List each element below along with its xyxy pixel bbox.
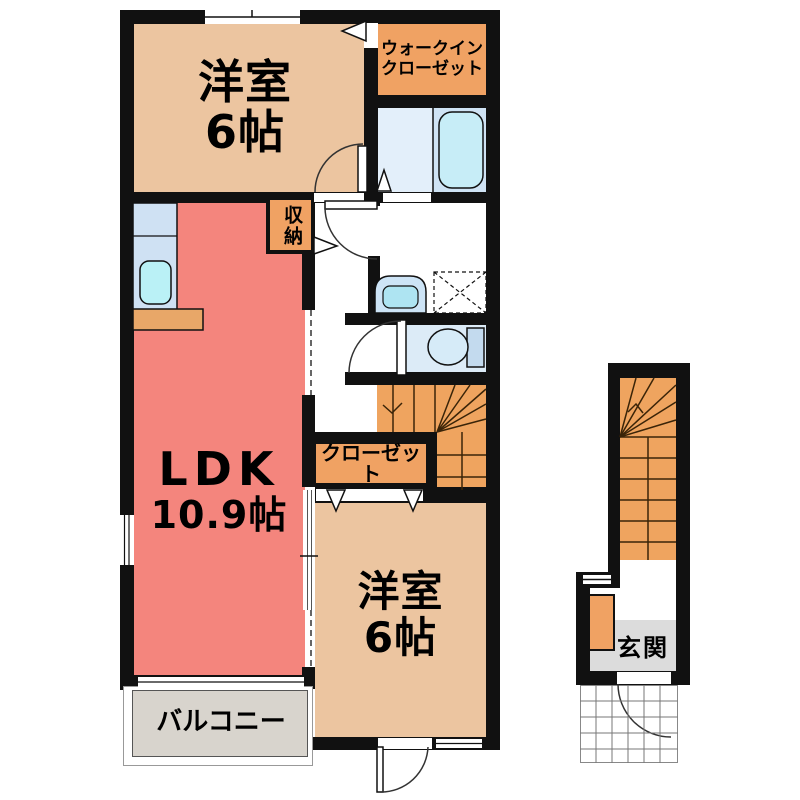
floor-plan: 洋室 6帖 ウォークイン クローゼット LDK 10.9帖 収納 クローゼット … <box>0 0 800 800</box>
wall <box>364 95 500 108</box>
wall <box>302 253 315 310</box>
wall <box>133 192 500 203</box>
toilet-room-floor <box>406 325 486 372</box>
room-name: LDK <box>158 445 279 493</box>
room-name: 収納 <box>281 205 301 247</box>
room-name: クローゼット <box>312 443 430 485</box>
ldk-label: LDK 10.9帖 <box>133 418 305 563</box>
entry-door <box>377 747 428 792</box>
room-size: 10.9帖 <box>151 496 288 536</box>
walk-in-closet-label: ウォークイン クローゼット <box>378 24 486 95</box>
room-name: 洋室 <box>198 58 292 106</box>
wall <box>345 313 500 325</box>
entrance-label: 玄関 <box>604 632 682 666</box>
bathroom-floor-right <box>433 108 486 192</box>
wall <box>345 372 486 385</box>
toilet-door <box>349 320 406 375</box>
storage-label: 収納 <box>272 200 310 252</box>
washbasin <box>375 276 426 313</box>
wall <box>302 737 500 750</box>
wall <box>120 10 134 690</box>
wall <box>315 487 500 503</box>
room-size: 6帖 <box>205 108 285 156</box>
bedroom-top-label: 洋室 6帖 <box>140 32 350 182</box>
balcony-label: バルコニー <box>135 703 307 743</box>
room-name: バルコニー <box>156 709 285 736</box>
closet-label: クローゼット <box>312 440 430 487</box>
room-name: 玄関 <box>617 636 669 661</box>
wall <box>576 671 690 685</box>
wall <box>368 203 380 313</box>
wall <box>608 363 620 578</box>
stairs-upper-floor <box>377 385 486 432</box>
room-name-line2: クローゼット <box>381 61 483 79</box>
room-size: 6帖 <box>364 616 437 660</box>
wall <box>120 10 500 24</box>
ldk-hall-door-icon <box>314 237 337 254</box>
washing-machine-space <box>434 272 486 313</box>
room-name-line1: ウォークイン <box>381 41 483 59</box>
stairs-lower-flight-floor <box>437 432 486 490</box>
room-name: 洋室 <box>357 570 443 614</box>
entry-stairs-floor <box>620 378 676 560</box>
bathroom-floor-left <box>378 108 433 192</box>
wall <box>486 10 500 750</box>
bedroom-bottom-label: 洋室 6帖 <box>315 540 486 690</box>
porch-floor <box>580 685 678 763</box>
